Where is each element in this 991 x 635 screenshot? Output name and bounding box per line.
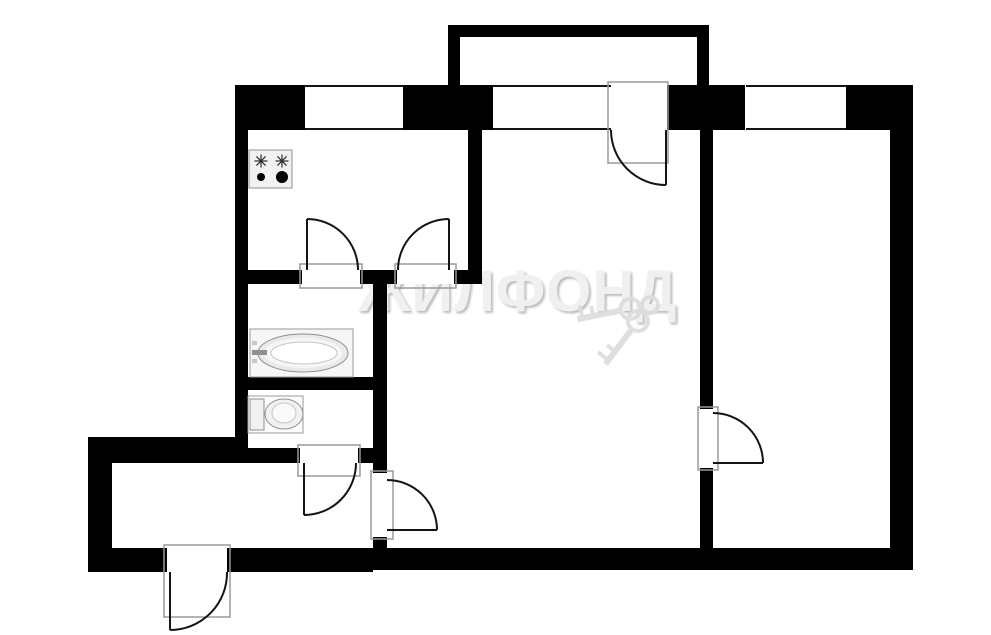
- door-opening: [300, 448, 358, 463]
- kitchen-hall-door: [395, 219, 456, 288]
- wall: [373, 270, 387, 473]
- wall: [448, 25, 709, 37]
- bedroom-door: [698, 407, 763, 470]
- wall: [248, 270, 302, 284]
- wall: [235, 448, 300, 463]
- wc-door: [298, 445, 360, 515]
- bathtub-knob: [252, 341, 257, 345]
- door-swing-arc: [170, 572, 227, 630]
- door-opening: [700, 409, 713, 468]
- toilet-tank: [250, 399, 264, 430]
- stove-burner-dot: [257, 173, 265, 181]
- toilet-bowl-inner: [272, 403, 296, 423]
- windows-layer: [305, 85, 846, 130]
- floor-plan: [0, 0, 991, 635]
- wall: [358, 448, 387, 463]
- toilet-icon: [248, 396, 303, 433]
- bathtub-icon: [250, 329, 353, 377]
- door-opening: [397, 270, 454, 284]
- door-swing-arc: [713, 413, 763, 463]
- wall: [248, 377, 373, 390]
- door-swing-arc: [387, 480, 437, 530]
- stove-body: [249, 150, 292, 188]
- bathtub-knob: [252, 359, 257, 363]
- stove-icon: [249, 150, 292, 188]
- bathtub-faucet: [252, 350, 267, 355]
- wall: [454, 270, 482, 284]
- wall: [890, 85, 913, 570]
- door-opening: [167, 548, 227, 572]
- bathtub-rim: [271, 342, 337, 364]
- wall: [448, 25, 460, 87]
- floor-plan-page: ЖИЛФОНД: [0, 0, 991, 635]
- wall: [373, 548, 913, 570]
- entrance-door: [164, 545, 230, 630]
- wall: [468, 128, 482, 284]
- door-opening: [302, 270, 360, 284]
- wall: [700, 128, 713, 409]
- wall: [697, 25, 709, 87]
- bathroom-door: [300, 219, 362, 288]
- keys-icon: [575, 294, 658, 370]
- window: [746, 85, 846, 130]
- stove-burner-dot: [276, 171, 288, 183]
- wall: [88, 548, 167, 572]
- hall-room-door: [371, 471, 437, 539]
- window: [305, 85, 403, 130]
- wall: [403, 85, 493, 130]
- window: [493, 85, 611, 130]
- door-swing-arc: [398, 219, 449, 270]
- balcony-door: [608, 82, 668, 185]
- door-swing-arc: [307, 219, 358, 270]
- wall: [700, 468, 713, 548]
- door-swing-arc: [304, 463, 356, 515]
- wall: [667, 85, 745, 130]
- door-swing-arc: [611, 130, 666, 185]
- door-opening: [373, 473, 387, 537]
- door-opening: [611, 85, 666, 130]
- wall: [235, 85, 248, 463]
- wall: [227, 548, 373, 572]
